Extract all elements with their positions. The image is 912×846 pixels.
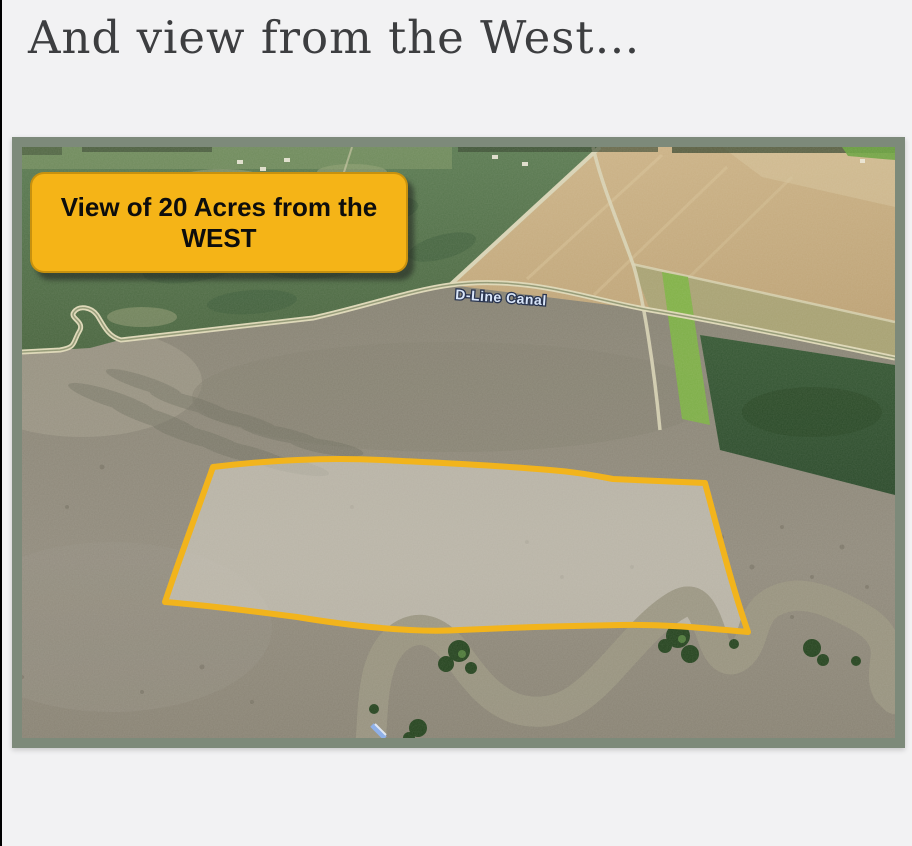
callout-box: View of 20 Acres from the WEST <box>30 172 408 273</box>
slide-title: And view from the West… <box>28 12 640 64</box>
window-left-edge <box>0 0 2 846</box>
callout-line-1: View of 20 Acres from the <box>61 192 377 223</box>
callout-line-2: WEST <box>181 223 256 254</box>
